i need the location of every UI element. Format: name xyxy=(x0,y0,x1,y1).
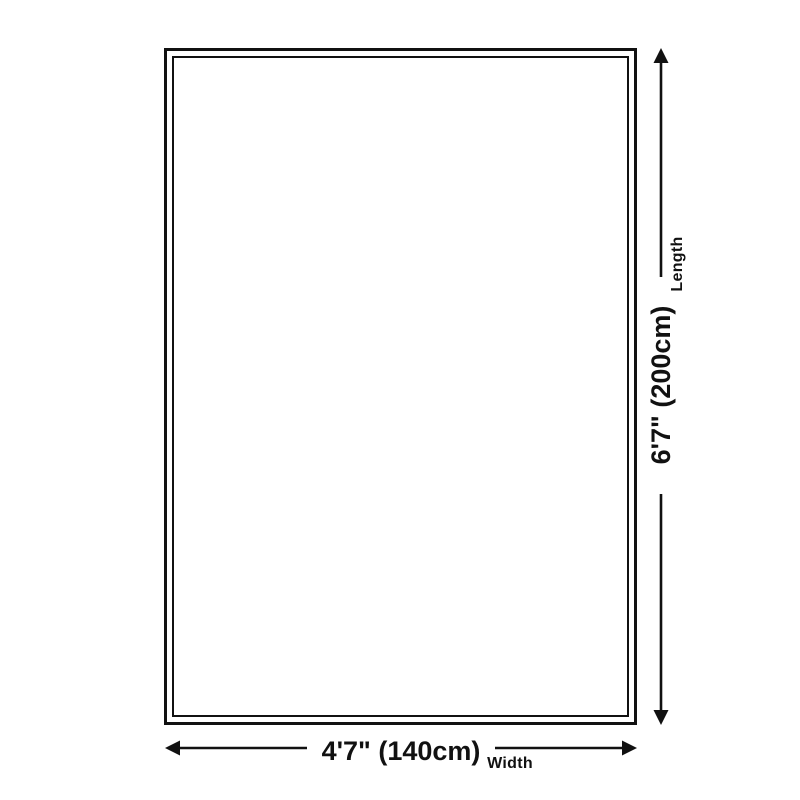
arrow-up-icon xyxy=(654,48,669,63)
product-outline xyxy=(164,48,637,725)
product-outline-inner-border xyxy=(172,56,629,717)
dimension-diagram: 4'7" (140cm) Width 6'7" (200cm) Length xyxy=(0,0,800,800)
width-value-label: 4'7" (140cm) xyxy=(322,737,481,767)
arrow-left-icon xyxy=(165,741,180,756)
length-axis-label: Length xyxy=(669,236,687,291)
width-axis-label: Width xyxy=(487,755,533,773)
arrow-right-icon xyxy=(622,741,637,756)
arrow-down-icon xyxy=(654,710,669,725)
length-value-label: 6'7" (200cm) xyxy=(647,306,677,465)
